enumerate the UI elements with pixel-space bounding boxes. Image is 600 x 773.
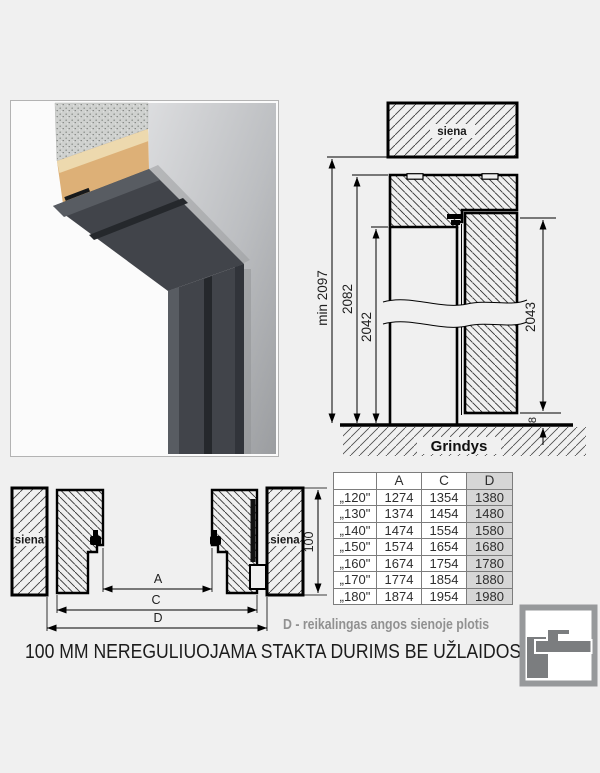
dimension-table: A C D „120" 1274 1354 1380 „130" 1374 14… [333,472,513,605]
jamb-left-seal-clip [93,530,98,537]
table-cell-c: 1454 [422,506,467,523]
break-band [383,300,527,328]
dim-min-total: min 2097 [315,270,330,326]
dim-depth: 100 [302,532,316,553]
table-cell-d: 1980 [467,588,513,605]
table-cell-size: „140" [334,522,377,539]
table-cell-size: „130" [334,506,377,523]
catalog-sheet: siena Grindys min 2 [0,0,600,773]
head-notch-right [482,174,498,180]
table-cell-a: 1874 [377,588,422,605]
frame-corner-render [11,101,278,456]
strike-plate [250,565,266,589]
jamb-left-seal [90,536,101,545]
plan-section-drawing: siena siena A C D 100 [0,482,335,637]
frame-corner-photo [10,100,279,457]
dim-opening: 2042 [359,312,374,342]
table-cell-a: 1674 [377,555,422,572]
table-cell-size: „150" [334,539,377,556]
table-header-d: D [467,473,513,490]
table-cell-a: 1474 [377,522,422,539]
table-header-a: A [377,473,422,490]
table-cell-d: 1480 [467,506,513,523]
head-notch-left [407,174,423,180]
dim-c: C [151,593,160,607]
frame-jamb-highlight [168,287,179,454]
table-row: „170" 1774 1854 1880 [334,572,513,589]
jamb-right-seal [210,536,221,545]
table-cell-a: 1274 [377,489,422,506]
table-row: „180" 1874 1954 1980 [334,588,513,605]
table-cell-a: 1574 [377,539,422,556]
table-cell-a: 1374 [377,506,422,523]
table-header-c: C [422,473,467,490]
dim-a: A [154,572,163,586]
table-cell-d: 1380 [467,489,513,506]
table-cell-size: „160" [334,555,377,572]
table-cell-c: 1654 [422,539,467,556]
vertical-section-drawing: siena Grindys min 2 [315,95,600,470]
table-cell-d: 1880 [467,572,513,589]
frame-jamb-edge [235,264,244,454]
table-row: „140" 1474 1554 1580 [334,522,513,539]
table-cell-c: 1754 [422,555,467,572]
table-cell-c: 1354 [422,489,467,506]
table-cell-size: „170" [334,572,377,589]
table-cell-d: 1580 [467,522,513,539]
table-row: „160" 1674 1754 1780 [334,555,513,572]
table-cell-a: 1774 [377,572,422,589]
table-cell-size: „180" [334,588,377,605]
gasket-strip [251,499,256,562]
table-cell-c: 1554 [422,522,467,539]
frame-jamb-groove [204,276,212,454]
head-seal [447,214,463,219]
wall-label: siena [437,126,467,138]
product-caption: 100 MM NEREGULIUOJAMA STAKTA DURIMS BE U… [25,641,521,664]
wall-left-label: siena [15,535,45,547]
table-row: „120" 1274 1354 1380 [334,489,513,506]
brand-logo [519,604,598,687]
table-cell-d: 1680 [467,539,513,556]
dim-frame-outer: 2082 [340,284,355,314]
table-cell-c: 1954 [422,588,467,605]
dim-floor-gap: 8 [527,417,539,423]
table-cell-d: 1780 [467,555,513,572]
jamb-right-seal-clip [212,530,217,537]
table-cell-c: 1854 [422,572,467,589]
wall-right-label: siena [270,535,300,547]
floor-label: Grindys [431,438,488,455]
table-header-row: A C D [334,473,513,490]
dim-door: 2043 [523,302,538,332]
table-header-size [334,473,377,490]
table-row: „150" 1574 1654 1680 [334,539,513,556]
head-seal-clip [451,220,460,225]
table-row: „130" 1374 1454 1480 [334,506,513,523]
table-cell-size: „120" [334,489,377,506]
d-dimension-note: D - reikalingas angos sienoje plotis [283,617,489,633]
dim-d: D [153,611,162,625]
